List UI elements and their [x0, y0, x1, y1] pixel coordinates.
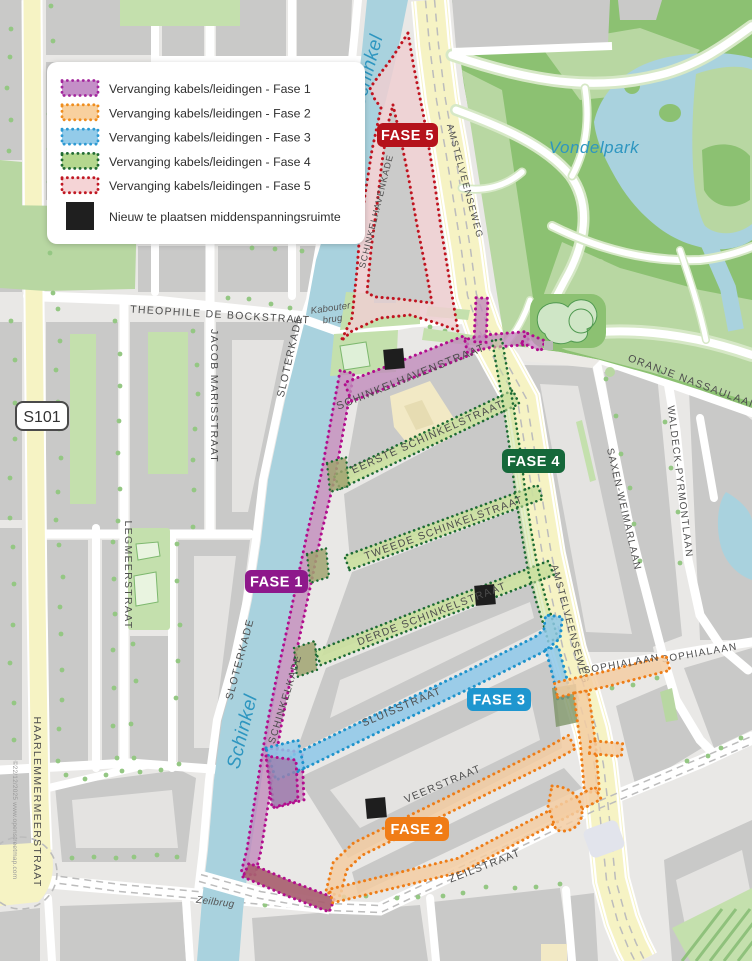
svg-text:HAARLEMMERMEERSTRAAT: HAARLEMMERMEERSTRAAT — [31, 716, 43, 887]
svg-text:JACOB MARISSTRAAT: JACOB MARISSTRAAT — [208, 329, 220, 463]
svg-text:FASE 3: FASE 3 — [473, 693, 526, 709]
svg-text:Vervanging kabels/leidingen -: Vervanging kabels/leidingen - Fase 4 — [109, 155, 311, 169]
svg-text:S101: S101 — [23, 409, 60, 426]
svg-text:LEGMEERSTRAAT: LEGMEERSTRAAT — [122, 521, 134, 630]
svg-text:©22/12/2025 www.openstreetmap.: ©22/12/2025 www.openstreetmap.com — [11, 761, 19, 880]
svg-text:FASE 4: FASE 4 — [507, 454, 560, 470]
svg-text:FASE 1: FASE 1 — [250, 575, 303, 591]
svg-text:Vervanging kabels/leidingen -: Vervanging kabels/leidingen - Fase 1 — [109, 82, 311, 96]
svg-text:Vervanging kabels/leidingen -: Vervanging kabels/leidingen - Fase 3 — [109, 131, 311, 145]
svg-text:Vervanging kabels/leidingen -: Vervanging kabels/leidingen - Fase 5 — [109, 179, 311, 193]
svg-text:FASE 2: FASE 2 — [391, 822, 444, 838]
svg-text:FASE 5: FASE 5 — [381, 128, 434, 144]
svg-text:Vervanging kabels/leidingen -: Vervanging kabels/leidingen - Fase 2 — [109, 106, 311, 120]
svg-text:Vondelpark: Vondelpark — [549, 138, 640, 157]
svg-text:Nieuw te plaatsen middenspanni: Nieuw te plaatsen middenspanningsruimte — [109, 210, 341, 224]
